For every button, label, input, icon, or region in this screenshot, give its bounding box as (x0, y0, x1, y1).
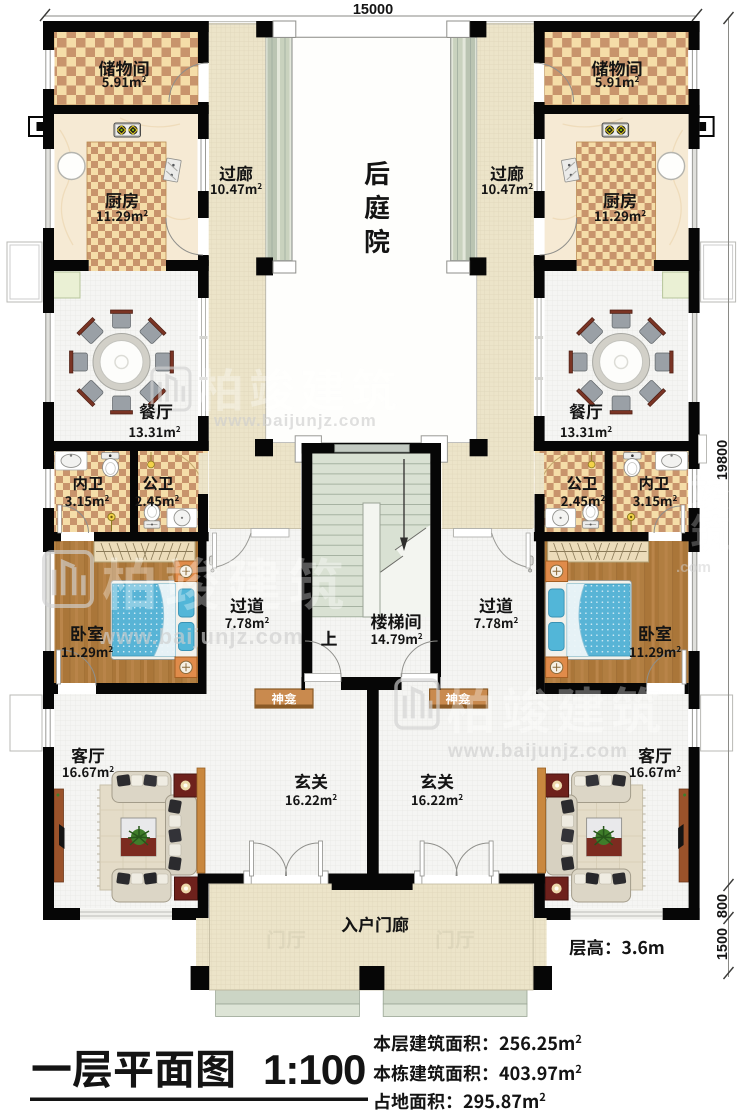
svg-text:1:100: 1:100 (263, 1046, 365, 1093)
svg-text:19800: 19800 (715, 440, 731, 480)
svg-text:www.baijunjz.com: www.baijunjz.com (213, 411, 377, 430)
svg-text:.com: .com (676, 559, 711, 576)
svg-text:www.baijunjz.com: www.baijunjz.com (97, 624, 304, 649)
svg-text:800: 800 (715, 894, 731, 918)
svg-text:15000: 15000 (353, 2, 393, 18)
svg-text:www.baijunjz.com: www.baijunjz.com (447, 741, 628, 762)
svg-text:1500: 1500 (715, 928, 731, 960)
